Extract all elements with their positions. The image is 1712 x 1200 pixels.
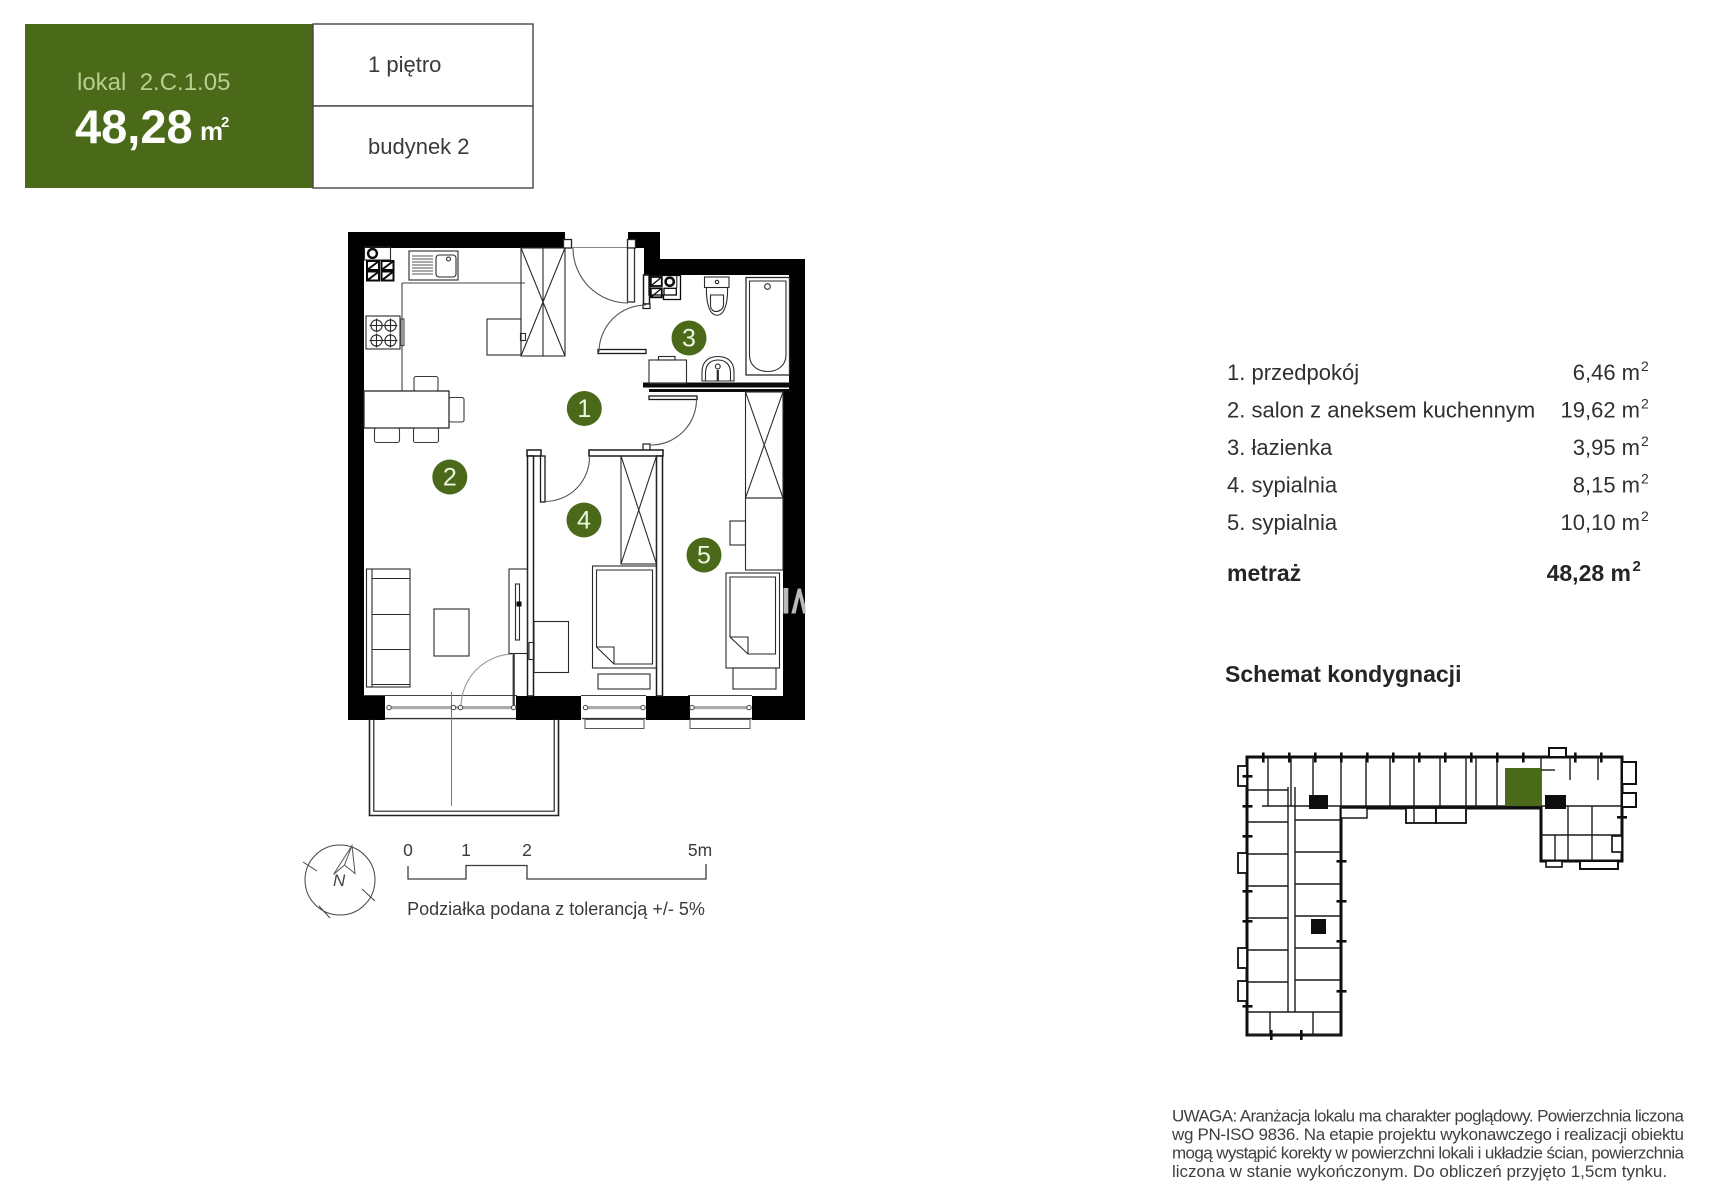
- svg-text:2: 2: [443, 464, 457, 492]
- svg-text:budynek 2: budynek 2: [368, 134, 470, 159]
- svg-text:19,62 m: 19,62 m: [1561, 398, 1641, 423]
- svg-text:5. sypialnia: 5. sypialnia: [1227, 510, 1338, 535]
- svg-text:48,28: 48,28: [75, 100, 193, 153]
- svg-text:wg PN-ISO 9836. Na etapie proj: wg PN-ISO 9836. Na etapie projektu wykon…: [1171, 1125, 1684, 1144]
- svg-text:3,95 m: 3,95 m: [1573, 435, 1640, 460]
- svg-text:2: 2: [1641, 396, 1649, 412]
- svg-text:2: 2: [1641, 433, 1649, 449]
- svg-text:2: 2: [522, 840, 532, 860]
- svg-text:mogą wystąpić korekty w powier: mogą wystąpić korekty w powierzchni loka…: [1172, 1144, 1685, 1163]
- svg-text:5m: 5m: [688, 840, 712, 860]
- svg-text:3. łazienka: 3. łazienka: [1227, 435, 1333, 460]
- svg-text:m: m: [200, 116, 223, 146]
- svg-text:1. przedpokój: 1. przedpokój: [1227, 360, 1359, 385]
- svg-text:lokal 2.C.1.05: lokal 2.C.1.05: [77, 69, 230, 96]
- svg-text:N: N: [333, 871, 346, 890]
- svg-text:2. salon z aneksem kuchennym: 2. salon z aneksem kuchennym: [1227, 398, 1535, 423]
- svg-text:6,46 m: 6,46 m: [1573, 360, 1640, 385]
- svg-text:1: 1: [461, 840, 471, 860]
- svg-text:1 piętro: 1 piętro: [368, 52, 441, 77]
- svg-text:2: 2: [1641, 508, 1649, 524]
- svg-text:Schemat kondygnacji: Schemat kondygnacji: [1225, 661, 1461, 687]
- svg-text:2: 2: [1641, 471, 1649, 487]
- svg-text:5: 5: [697, 542, 711, 570]
- svg-text:UWAGA: Aranżacja lokalu ma cha: UWAGA: Aranżacja lokalu ma charakter pog…: [1172, 1107, 1685, 1126]
- svg-text:10,10 m: 10,10 m: [1561, 510, 1641, 535]
- svg-text:Podziałka podana z tolerancją: Podziałka podana z tolerancją +/- 5%: [407, 899, 705, 919]
- svg-text:2: 2: [1633, 558, 1641, 575]
- svg-text:48,28 m: 48,28 m: [1547, 560, 1631, 586]
- svg-text:liczona w stanie wykończonym.: liczona w stanie wykończonym. Do oblicze…: [1172, 1162, 1667, 1181]
- svg-text:8,15 m: 8,15 m: [1573, 473, 1640, 498]
- svg-text:4: 4: [577, 507, 591, 535]
- svg-text:0: 0: [403, 840, 413, 860]
- svg-text:3: 3: [682, 325, 696, 353]
- svg-text:2: 2: [1641, 358, 1649, 374]
- svg-text:metraż: metraż: [1227, 560, 1301, 586]
- svg-text:1: 1: [577, 395, 591, 423]
- svg-text:2: 2: [221, 114, 229, 131]
- svg-text:4. sypialnia: 4. sypialnia: [1227, 473, 1338, 498]
